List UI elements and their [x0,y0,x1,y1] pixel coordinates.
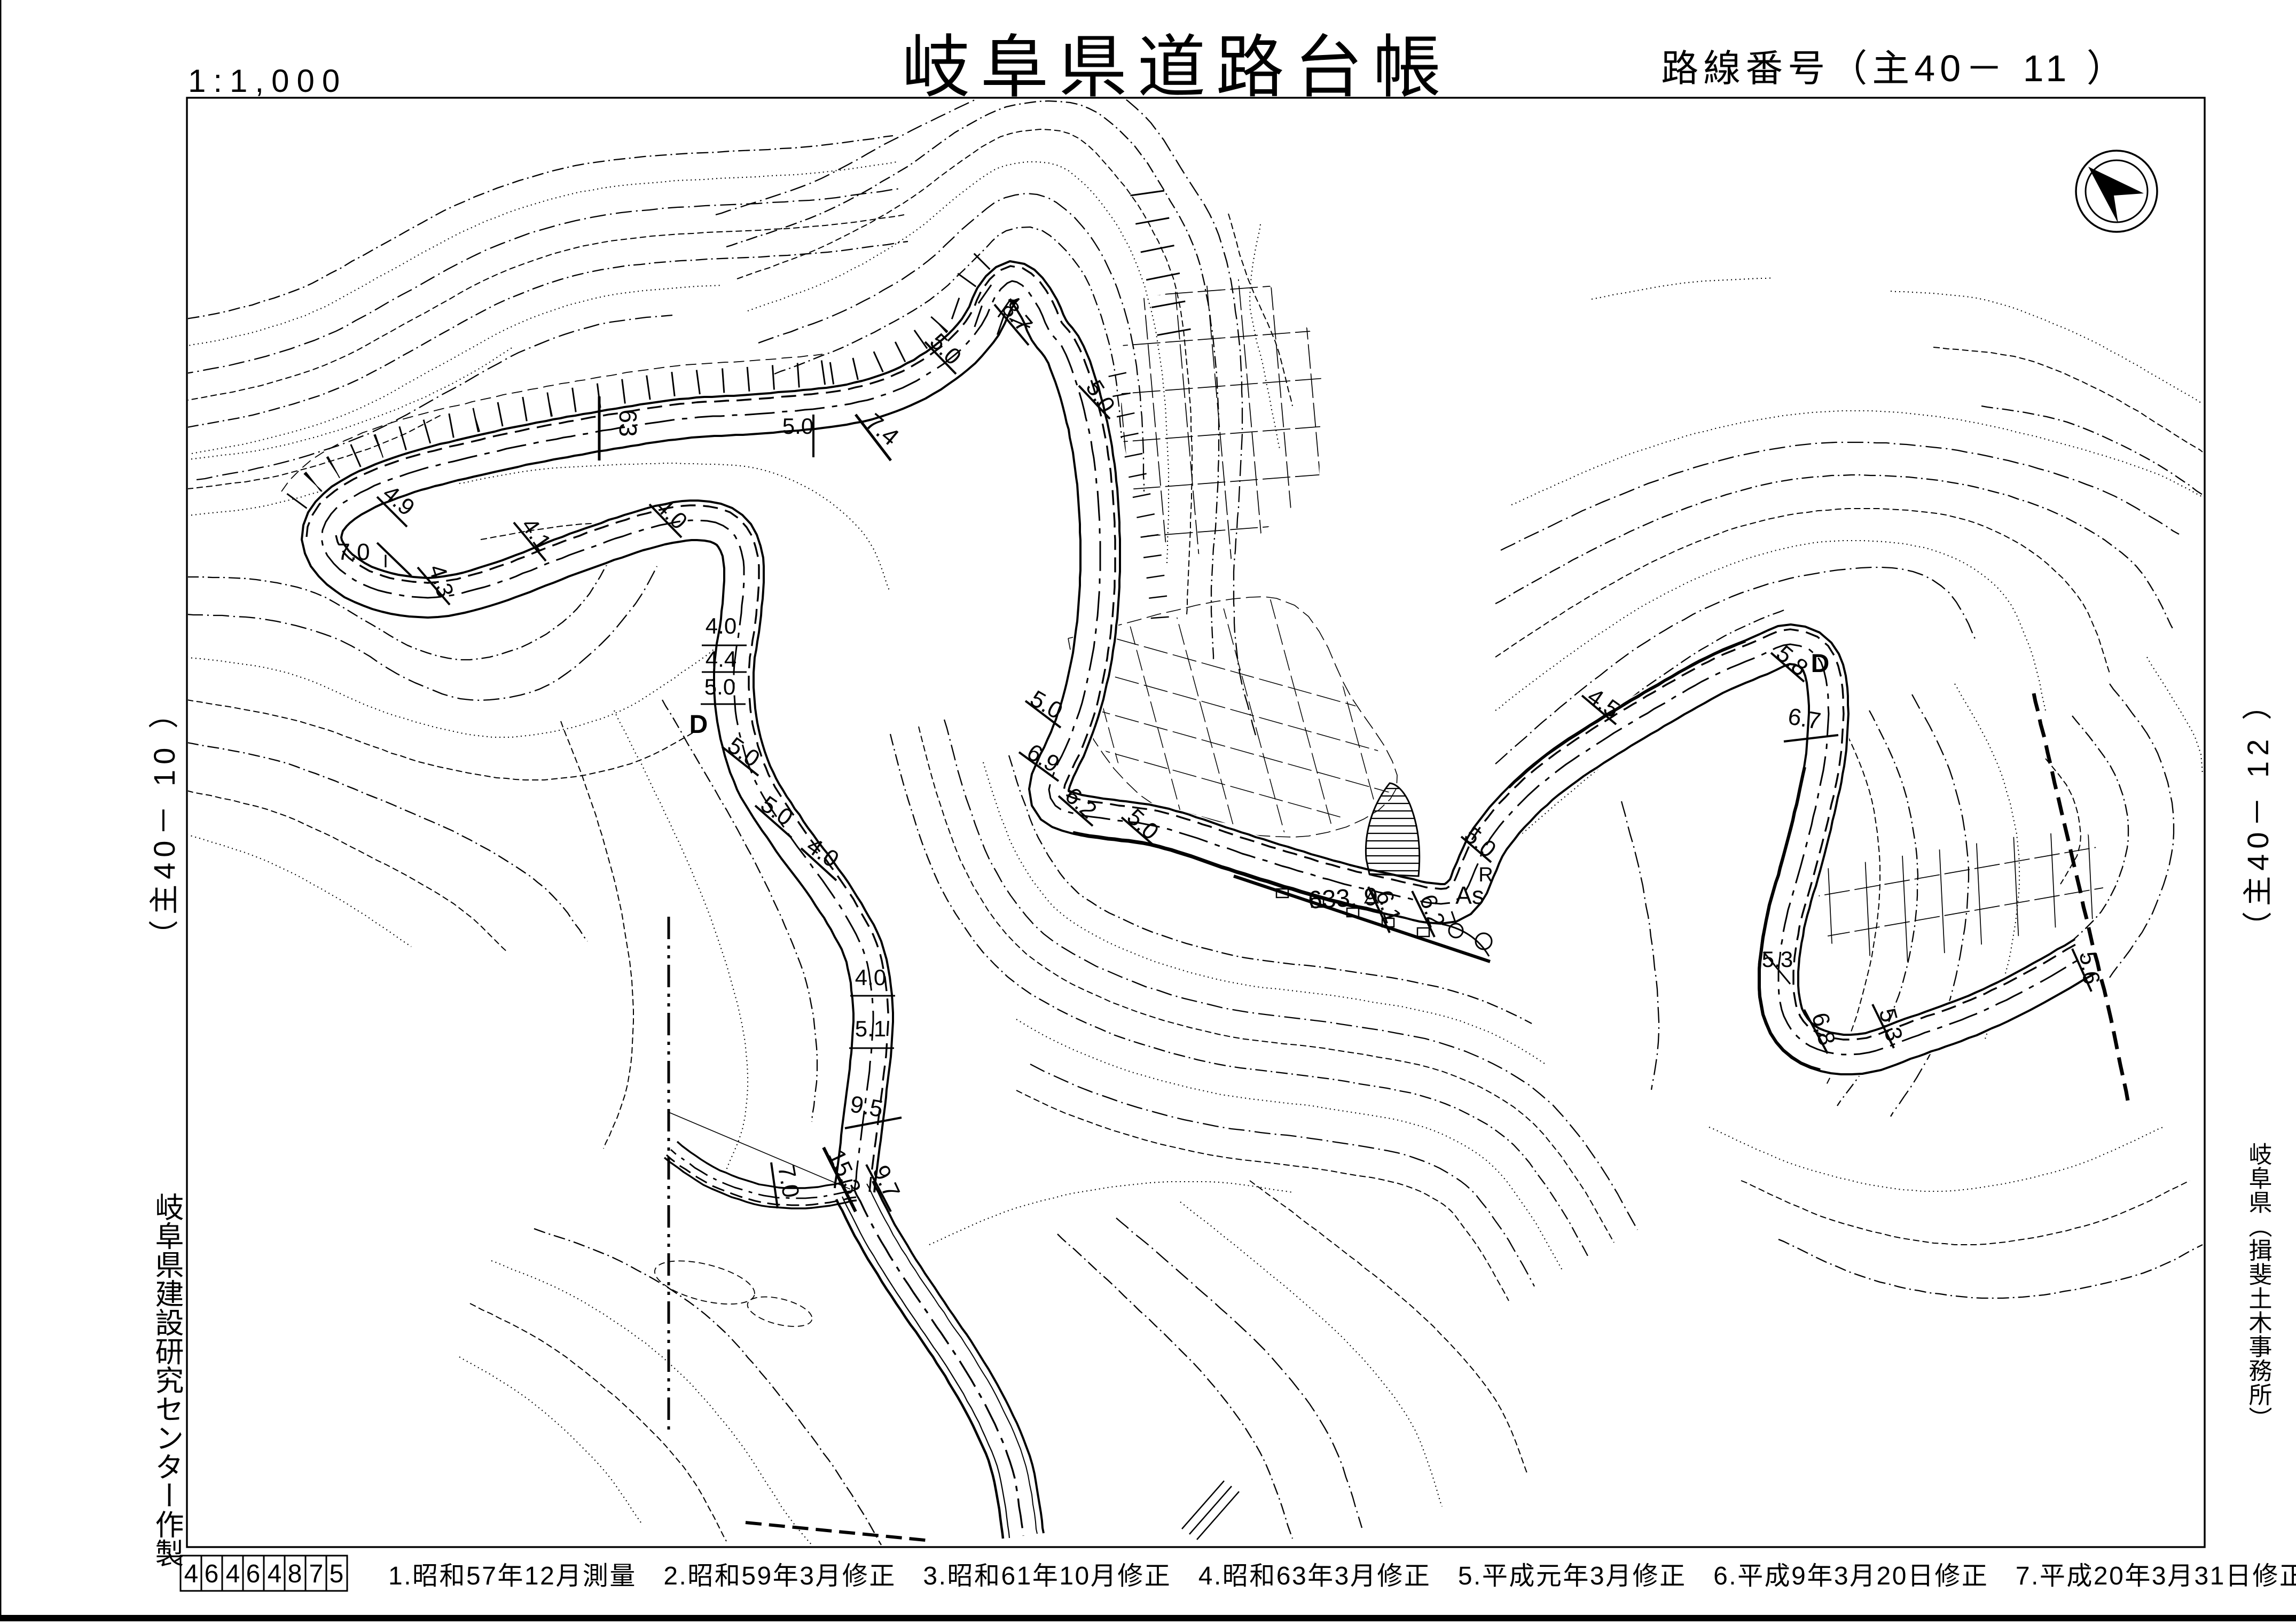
svg-text:（主40－ 10 ）: （主40－ 10 ） [147,693,181,950]
svg-text:7.0: 7.0 [337,539,370,565]
svg-text:4.4: 4.4 [706,646,736,672]
svg-text:D: D [1811,650,1830,678]
svg-text:7.0: 7.0 [773,1163,804,1200]
svg-text:5.6: 5.6 [2074,950,2105,986]
svg-text:5.0: 5.0 [782,413,813,439]
svg-text:4: 4 [226,1560,240,1588]
svg-text:（主40－ 12 ）: （主40－ 12 ） [2241,685,2275,941]
svg-text:5: 5 [330,1560,344,1588]
svg-text:4.0: 4.0 [855,965,886,990]
svg-text:7: 7 [309,1560,324,1588]
svg-text:5.1: 5.1 [855,1016,886,1041]
svg-text:4: 4 [268,1560,282,1588]
svg-text:9.5: 9.5 [848,1091,885,1122]
svg-text:岐阜県（揖斐土木事務所）: 岐阜県（揖斐土木事務所） [2245,1142,2272,1431]
svg-text:R: R [1478,864,1493,886]
svg-text:4.0: 4.0 [706,613,736,638]
svg-text:1.昭和57年12月測量 2.昭和59年3月修正 3.昭和6: 1.昭和57年12月測量 2.昭和59年3月修正 3.昭和61年10月修正 4.… [388,1562,2296,1590]
svg-text:4: 4 [184,1560,199,1588]
svg-text:I: I [383,551,388,572]
svg-text:6: 6 [246,1560,261,1588]
svg-text:63: 63 [614,409,642,436]
svg-text:岐阜県道路台帳: 岐阜県道路台帳 [902,29,1451,106]
svg-text:D: D [689,710,708,739]
svg-text:6.7: 6.7 [1786,703,1823,735]
svg-text:6: 6 [205,1560,219,1588]
svg-text:8: 8 [288,1560,302,1588]
svg-text:5.0: 5.0 [704,674,735,699]
svg-text:路線番号（主40－ 11 ）: 路線番号（主40－ 11 ） [1661,48,2128,89]
svg-text:1:1,000: 1:1,000 [188,63,347,99]
svg-text:岐阜県建設研究センター作製: 岐阜県建設研究センター作製 [151,1192,183,1567]
